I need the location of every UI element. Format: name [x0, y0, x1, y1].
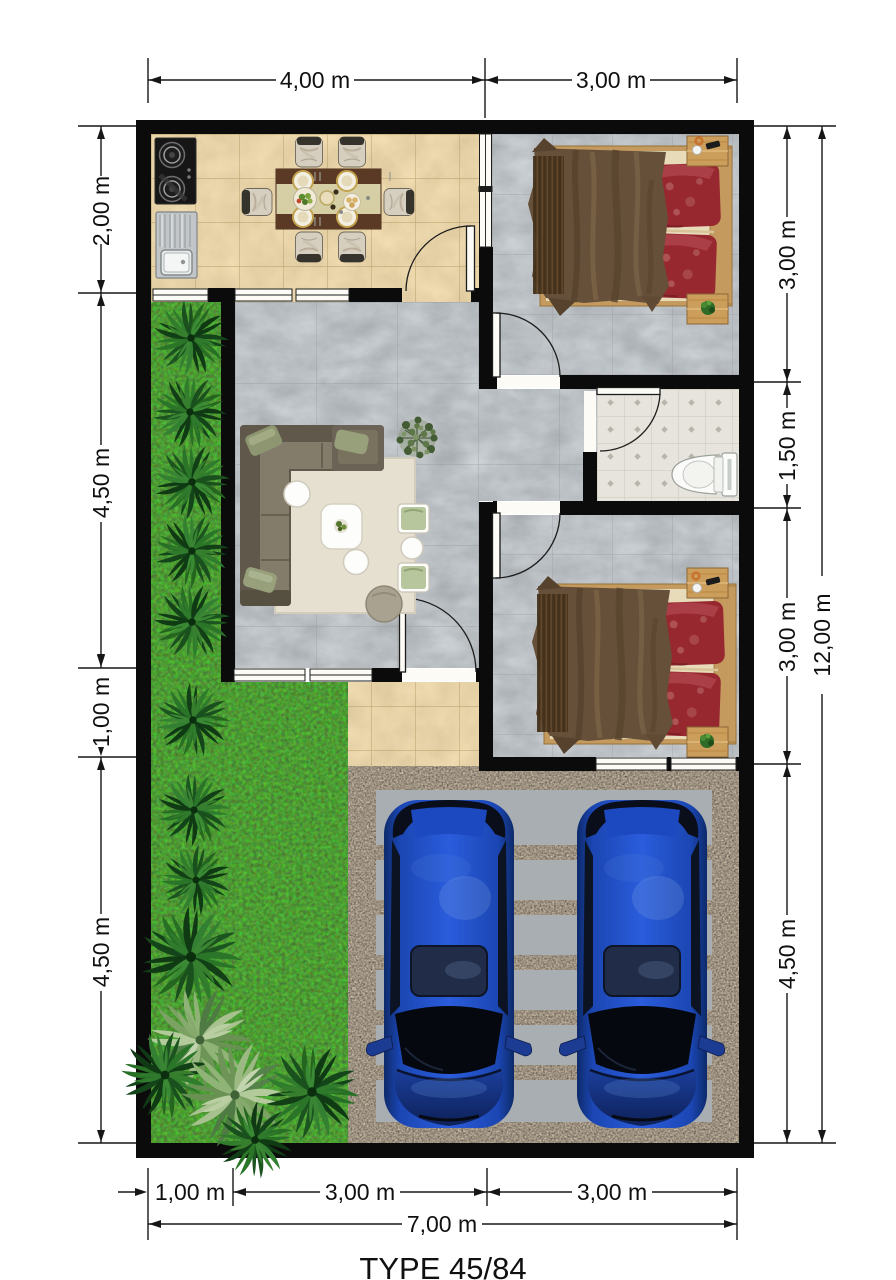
svg-text:4,00 m: 4,00 m: [280, 67, 350, 93]
svg-text:2,00 m: 2,00 m: [88, 176, 114, 246]
svg-text:3,00 m: 3,00 m: [576, 67, 646, 93]
svg-text:4,50 m: 4,50 m: [774, 919, 800, 989]
svg-text:4,50 m: 4,50 m: [88, 448, 114, 518]
svg-text:7,00 m: 7,00 m: [407, 1211, 477, 1237]
svg-text:1,00 m: 1,00 m: [155, 1179, 225, 1205]
svg-text:3,00 m: 3,00 m: [325, 1179, 395, 1205]
svg-text:12,00 m: 12,00 m: [809, 593, 835, 676]
svg-text:3,00 m: 3,00 m: [774, 220, 800, 290]
svg-text:TYPE 45/84: TYPE 45/84: [359, 1251, 526, 1280]
svg-text:3,00 m: 3,00 m: [577, 1179, 647, 1205]
svg-text:4,50 m: 4,50 m: [88, 917, 114, 987]
svg-text:1,50 m: 1,50 m: [774, 411, 800, 481]
svg-text:3,00 m: 3,00 m: [774, 602, 800, 672]
svg-text:1,00 m: 1,00 m: [88, 677, 114, 747]
